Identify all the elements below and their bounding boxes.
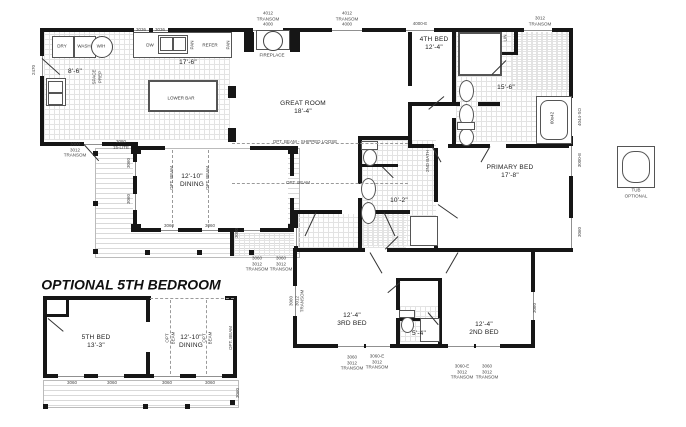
- door-swing-line: [438, 204, 458, 219]
- porch-post: [249, 250, 254, 255]
- fixture-label: DRY: [57, 43, 66, 48]
- schedule-tag-label: 3060: [532, 303, 538, 313]
- wall-segment: [452, 118, 456, 146]
- wall-segment: [133, 176, 137, 194]
- fixture-outline: [48, 81, 63, 93]
- schedule-tag-label: 4000-E: [413, 21, 428, 27]
- wall-segment: [139, 146, 165, 150]
- wall-segment: [40, 28, 44, 146]
- porch-post: [230, 400, 235, 405]
- porch-post: [93, 201, 98, 206]
- fixture-label: DW: [146, 42, 154, 47]
- window-glass-line: [135, 162, 136, 176]
- wall-segment: [178, 228, 202, 232]
- schedule-tag-label: 3060-E 3012 TRANSOM: [451, 364, 474, 381]
- porch-post: [197, 250, 202, 255]
- porch-post: [143, 404, 148, 409]
- wall-segment: [66, 296, 69, 316]
- schedule-tag-label: 3060 3012 TRANSOM: [341, 355, 364, 372]
- fixture-outline: [410, 216, 438, 246]
- wall-segment: [290, 154, 294, 176]
- schedule-tag-label: 3080: [234, 228, 240, 238]
- wall-segment: [358, 136, 412, 140]
- window-glass-line: [161, 230, 178, 231]
- door-swing-line: [446, 252, 459, 273]
- door-swing-line: [48, 318, 64, 332]
- schedule-tag-label: 3060: [126, 194, 132, 204]
- window-glass-line: [366, 346, 390, 347]
- schedule-tag-label: 2ND BATH: [425, 150, 431, 172]
- porch-post: [43, 404, 48, 409]
- schedule-tag-label: TUB OPTIONAL: [625, 187, 648, 198]
- wall-segment: [462, 248, 535, 252]
- wall-segment: [452, 28, 456, 106]
- window-glass-line: [296, 228, 297, 246]
- door-swing-line: [370, 252, 383, 273]
- wall-segment: [408, 28, 412, 86]
- wall-segment: [396, 278, 442, 281]
- wall-segment: [250, 146, 290, 150]
- window-glass-line: [135, 194, 136, 210]
- room-label: 4TH BED 12'-4": [420, 36, 449, 52]
- room-label: 12'-10" DINING: [179, 334, 203, 350]
- schedule-tag-label: 3060 3012 TRANSOM: [289, 290, 306, 313]
- section-title: OPTIONAL 5TH BEDROOM: [41, 277, 220, 294]
- fixture-label: FIREPLACE: [259, 52, 284, 57]
- schedule-tag-label: 3060 3012 TRANSOM: [270, 256, 293, 273]
- window-glass-line: [448, 346, 474, 347]
- wall-segment: [141, 228, 161, 232]
- fixture-label: WASH: [77, 43, 90, 48]
- window-glass-line: [524, 30, 552, 31]
- window-glass-line: [196, 376, 222, 377]
- schedule-tag-label: OPT BEAM: [201, 332, 212, 345]
- schedule-tag-label: OPT. BEAM: [228, 326, 234, 350]
- door-swing-line: [481, 146, 491, 162]
- schedule-tag-label: 3060: [205, 380, 215, 386]
- fixture-outline: [48, 93, 63, 105]
- wall-segment: [290, 28, 300, 52]
- fixture-label: LIN: [502, 34, 507, 41]
- toilet-tank: [399, 310, 415, 318]
- wall-segment: [358, 164, 398, 167]
- fixture-label: W/H: [97, 43, 106, 48]
- fixture-outline: [173, 37, 186, 51]
- fixture-outline: [622, 151, 650, 183]
- porch-post: [185, 404, 190, 409]
- window-glass-line: [98, 376, 124, 377]
- schedule-tag-label: 3060: [107, 380, 117, 386]
- tile-floor-area: [512, 32, 569, 90]
- schedule-tag-label: 3060: [164, 223, 174, 229]
- window-glass-line: [406, 30, 434, 31]
- fixture-label: REFER: [202, 42, 217, 47]
- porch-post: [93, 249, 98, 254]
- schedule-tag-label: 4044-SO: [577, 108, 583, 126]
- schedule-tag-label: 3060: [67, 380, 77, 386]
- room-label: 5'-4": [412, 330, 426, 338]
- wall-segment: [260, 228, 290, 232]
- schedule-tag-label: SPACE PREP: [91, 70, 102, 85]
- room-label: 5TH BED 13'-3": [82, 334, 111, 350]
- window-glass-line: [476, 346, 500, 347]
- schedule-tag-label: 15-LITE: [113, 145, 129, 151]
- schedule-tag-label: OPT BEAM: [164, 332, 175, 345]
- wall-segment: [396, 318, 400, 346]
- plumbing-fixture-oval: [361, 202, 376, 224]
- window-glass-line: [58, 376, 84, 377]
- plumbing-fixture-oval: [459, 80, 474, 102]
- schedule-tag-label: 3060-E 3012 TRANSOM: [366, 354, 389, 371]
- room-label: 12'-10" DINING: [180, 173, 204, 189]
- room-label: 12'-4" 3RD BED: [337, 312, 367, 328]
- opt-beam-dashed-line: [232, 183, 408, 185]
- room-label: GREAT ROOM 18'-4": [280, 100, 326, 116]
- wall-segment: [133, 210, 137, 226]
- plumbing-fixture-oval: [363, 149, 377, 166]
- wall-segment: [43, 296, 47, 378]
- room-floor-area: [137, 150, 288, 226]
- room-label: 10'-2": [390, 197, 408, 205]
- round-fixture: [263, 31, 283, 51]
- schedule-tag-label: OPT. BEAM: [286, 180, 310, 186]
- schedule-tag-label: 2470: [31, 65, 37, 75]
- window-glass-line: [244, 230, 260, 231]
- schedule-tag-label: 3060: [162, 380, 172, 386]
- plumbing-fixture-oval: [361, 178, 376, 200]
- schedule-tag-label: 3060: [577, 227, 583, 237]
- fixture-label: PAN: [189, 41, 194, 50]
- window-glass-line: [571, 218, 572, 248]
- schedule-tag-label: 3036: [155, 27, 165, 33]
- wall-segment: [408, 102, 412, 148]
- wall-segment: [478, 102, 500, 106]
- schedule-tag-label: 4012 TRANSOM 4000: [336, 11, 359, 28]
- schedule-tag-label: OPT. BEAM: [205, 166, 211, 190]
- wall-segment: [293, 248, 365, 252]
- plumbing-fixture-oval: [459, 128, 474, 146]
- schedule-tag-label: 3012 TRANSOM: [529, 15, 552, 26]
- tile-floor-area: [234, 234, 294, 256]
- window-glass-line: [202, 230, 218, 231]
- window-glass-line: [338, 346, 364, 347]
- window-glass-line: [332, 30, 362, 31]
- fixture-label: PAN: [225, 41, 230, 50]
- room-label: 12'-4" 2ND BED: [469, 321, 499, 337]
- floor-plan-canvas: OPTIONAL 5TH BEDROOM 303630364012 TRANSO…: [0, 0, 686, 427]
- wall-segment: [133, 152, 137, 162]
- schedule-tag-label: 3060: [126, 158, 132, 168]
- schedule-tag-label: 3000 3012 TRANSOM: [64, 142, 87, 159]
- schedule-tag-label: OPT. BEAM - SHIPPED LOOSE: [273, 139, 338, 145]
- schedule-tag-label: 3060 3012 TRANSOM: [476, 364, 499, 381]
- room-label: 8'-6": [68, 68, 82, 76]
- room-label: 15'-6": [497, 84, 515, 92]
- room-label: PRIMARY BED 17'-8": [487, 164, 534, 180]
- schedule-tag-label: 3060 3012 TRANSOM: [246, 256, 269, 273]
- room-label: 17'-6": [179, 59, 197, 67]
- window-glass-line: [571, 146, 572, 176]
- fixture-label: LOWER BAR: [167, 95, 194, 100]
- wall-segment: [506, 144, 573, 148]
- wall-segment: [298, 210, 342, 214]
- fixture-label: 60x42: [549, 112, 554, 124]
- schedule-tag-label: OPT. BEAM: [169, 166, 175, 190]
- porch-post: [145, 250, 150, 255]
- schedule-tag-label: 3000-E: [577, 153, 583, 168]
- fixture-outline: [160, 37, 173, 51]
- schedule-tag-label: 3060: [235, 388, 241, 398]
- schedule-tag-label: 4012 TRANSOM 4000: [257, 11, 280, 28]
- schedule-tag-label: 3080: [116, 139, 126, 145]
- wall-segment: [228, 86, 236, 98]
- wall-segment: [228, 128, 236, 142]
- wall-segment: [514, 28, 518, 54]
- window-glass-line: [84, 144, 102, 145]
- opt-beam-dashed-line: [150, 298, 234, 300]
- window-glass-line: [154, 376, 180, 377]
- toilet-tank: [457, 122, 475, 130]
- wall-segment: [43, 296, 151, 300]
- schedule-tag-label: 3036: [136, 27, 146, 33]
- wall-segment: [146, 352, 150, 378]
- schedule-tag-label: 3060: [205, 223, 215, 229]
